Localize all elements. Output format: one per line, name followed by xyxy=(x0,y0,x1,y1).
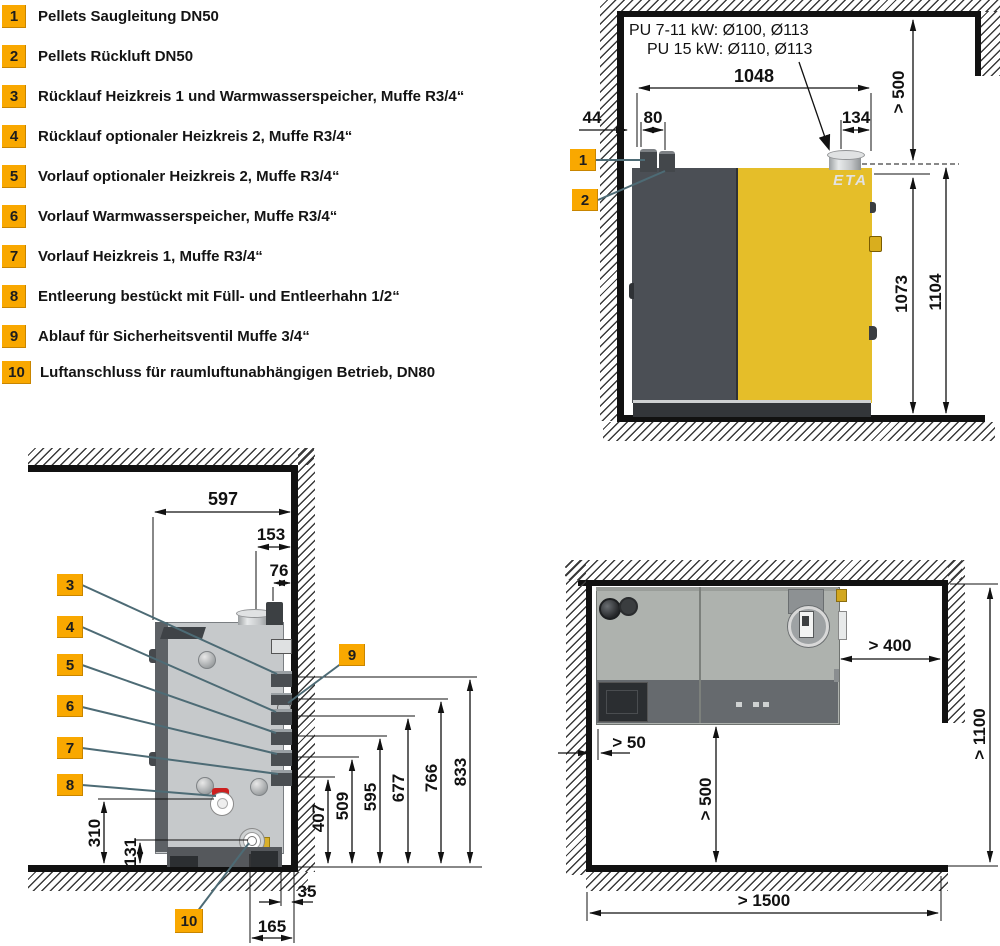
dim-label: 766 xyxy=(422,764,441,792)
side-bump-top xyxy=(834,669,839,682)
flue-note-line2: PU 15 kW: Ø110, Ø113 xyxy=(647,41,812,59)
junction-box xyxy=(271,639,292,654)
control-mark-1 xyxy=(736,702,742,707)
ceiling-line xyxy=(617,11,981,17)
flue-outlet-slot xyxy=(802,616,809,626)
legend-number-badge: 7 xyxy=(2,245,26,268)
legend-number-badge: 5 xyxy=(2,165,26,188)
dim-label: 310 xyxy=(85,819,104,847)
pellet-hopper-front xyxy=(632,168,737,403)
rear-wall-hatch xyxy=(298,448,315,872)
foot-front xyxy=(170,856,198,867)
rear-wall-line xyxy=(291,465,298,872)
dim-side-clearance-400: > 400 xyxy=(841,636,940,659)
legend-number-badge: 10 xyxy=(2,361,31,384)
pellet-suction-pipe xyxy=(640,149,657,172)
floor-hatch xyxy=(28,872,308,891)
dim-label: 76 xyxy=(270,561,289,580)
legend-number-badge: 2 xyxy=(2,45,26,68)
dim-label: 677 xyxy=(389,774,408,802)
callout-1: 1 xyxy=(570,149,596,171)
legend-item-label: Luftanschluss für raumluftunabhängigen B… xyxy=(40,361,435,384)
dim-chimney-offset-134: 134 xyxy=(841,108,871,149)
top-vent xyxy=(160,627,206,639)
dim-label: > 500 xyxy=(889,70,908,113)
dim-pipe-spacing-80: 80 xyxy=(641,108,665,150)
pellet-return-port xyxy=(619,597,638,616)
boiler-body-side xyxy=(155,622,284,854)
right-wall-line xyxy=(942,580,948,723)
control-mark-3 xyxy=(763,702,769,707)
dim-width-1048: 1048 xyxy=(637,66,871,151)
flue-note-arrow xyxy=(799,62,829,149)
legend-item-label: Entleerung bestückt mit Füll- und Entlee… xyxy=(38,285,400,308)
callout-3: 3 xyxy=(57,574,83,596)
legend-item-label: Rücklauf Heizkreis 1 und Warmwasserspeic… xyxy=(38,85,464,108)
control-mark-2 xyxy=(753,702,759,707)
dim-label: 80 xyxy=(644,108,663,127)
right-edge-bump-upper xyxy=(870,202,876,213)
dim-label: 597 xyxy=(208,489,238,509)
dim-label: 1104 xyxy=(926,273,945,310)
boiler-front-edge xyxy=(155,622,168,852)
boundary-hatch xyxy=(586,872,948,891)
dim-label: > 1500 xyxy=(738,891,790,910)
legend-item-label: Rücklauf optionaler Heizkreis 2, Muffe R… xyxy=(38,125,352,148)
dim-label: 165 xyxy=(258,917,286,936)
dim-label: 1048 xyxy=(734,66,774,86)
callout-5: 5 xyxy=(57,654,83,676)
boiler-base xyxy=(633,403,871,417)
dim-height-833: 833 xyxy=(294,677,477,863)
door-hinge-lower xyxy=(149,752,156,766)
air-connection-inner xyxy=(247,836,257,846)
callout-4: 4 xyxy=(57,616,83,638)
fitting-flow-hk1 xyxy=(271,770,292,786)
door-hinge-upper xyxy=(149,649,156,663)
legend-number-badge: 8 xyxy=(2,285,26,308)
dim-depth-597: 597 xyxy=(153,489,290,620)
dim-label: 509 xyxy=(333,792,352,820)
legend-item-label: Vorlauf optionaler Heizkreis 2, Muffe R3… xyxy=(38,165,339,188)
dim-label: > 400 xyxy=(868,636,911,655)
callout-9: 9 xyxy=(339,644,365,666)
rear-pipe-side xyxy=(266,602,283,625)
callout-7: 7 xyxy=(57,737,83,759)
fitting-flow-dhw xyxy=(271,750,292,766)
legend-number-badge: 4 xyxy=(2,125,26,148)
dim-label: 595 xyxy=(361,783,380,811)
eta-logo: ETA xyxy=(814,172,868,188)
right-wall-hatch xyxy=(948,560,965,723)
boiler-body-front xyxy=(737,168,872,403)
dim-label: > 1100 xyxy=(970,708,989,760)
right-wall-hatch xyxy=(981,11,1000,76)
ceiling-hatch xyxy=(28,448,314,465)
panel-seam-top xyxy=(699,587,701,723)
ceiling-line xyxy=(28,465,297,472)
left-wall-line xyxy=(617,11,624,421)
boundary-line xyxy=(586,865,948,872)
side-knob xyxy=(869,236,882,252)
dim-label: 833 xyxy=(451,758,470,786)
fitting-flow-hk2 xyxy=(271,729,292,745)
fitting-safety-valve xyxy=(271,693,292,705)
legend-item-label: Pellets Rückluft DN50 xyxy=(38,45,193,68)
dim-pipe-76: 76 xyxy=(270,561,290,601)
callout-8: 8 xyxy=(57,774,83,796)
pellet-return-pipe xyxy=(659,151,675,172)
side-panel-top xyxy=(838,611,847,640)
floor-hatch xyxy=(603,422,995,441)
dim-label: > 50 xyxy=(612,733,646,752)
foot-rear xyxy=(251,851,278,867)
fill-door-inner xyxy=(606,690,638,714)
capped-socket-rear xyxy=(250,778,268,796)
dim-height-766: 766 xyxy=(294,699,448,863)
legend-number-badge: 1 xyxy=(2,5,26,28)
flue-note-line1: PU 7-11 kW: Ø100, Ø113 xyxy=(629,22,809,40)
dim-front-clearance-500: > 500 xyxy=(696,727,716,862)
boiler-panel-seam xyxy=(736,168,738,403)
dim-height-1104: 1104 xyxy=(862,164,959,413)
dim-label: 134 xyxy=(842,108,871,127)
hopper-side-bump xyxy=(629,283,634,299)
installation-diagram-page: 1Pellets Saugleitung DN50 2Pellets Rückl… xyxy=(0,0,1000,946)
fitting-return-hk2 xyxy=(271,709,292,725)
callout-2: 2 xyxy=(572,189,598,211)
pellet-suction-port xyxy=(599,598,621,620)
dim-label: 1073 xyxy=(892,275,911,313)
knob-top xyxy=(836,589,847,602)
callout-6: 6 xyxy=(57,695,83,717)
drain-valve-center xyxy=(217,798,228,809)
fitting-return-hk1 xyxy=(271,671,292,687)
rear-wall-hatch xyxy=(565,560,962,580)
left-wall-hatch xyxy=(566,560,586,875)
dim-label: 153 xyxy=(257,525,285,544)
dim-ceiling-clearance-500: > 500 xyxy=(889,20,913,160)
left-wall-line xyxy=(586,580,592,868)
right-edge-bump-lower xyxy=(869,326,877,340)
legend-item-label: Vorlauf Heizkreis 1, Muffe R3/4“ xyxy=(38,245,263,268)
dim-height-1073: 1073 xyxy=(874,174,930,413)
rear-wall-line xyxy=(578,580,948,586)
flue-collar-cap xyxy=(827,150,865,160)
legend-item-label: Pellets Saugleitung DN50 xyxy=(38,5,219,28)
legend-number-badge: 3 xyxy=(2,85,26,108)
callout-10: 10 xyxy=(175,909,203,933)
legend-number-badge: 6 xyxy=(2,205,26,228)
dim-chimney-153: 153 xyxy=(256,525,290,609)
legend-item-label: Ablauf für Sicherheitsventil Muffe 3/4“ xyxy=(38,325,310,348)
capped-socket-upper xyxy=(198,651,216,669)
legend-item-label: Vorlauf Warmwasserspeicher, Muffe R3/4“ xyxy=(38,205,337,228)
dim-label: 131 xyxy=(121,838,140,866)
legend-number-badge: 9 xyxy=(2,325,26,348)
dim-label: > 500 xyxy=(696,777,715,820)
